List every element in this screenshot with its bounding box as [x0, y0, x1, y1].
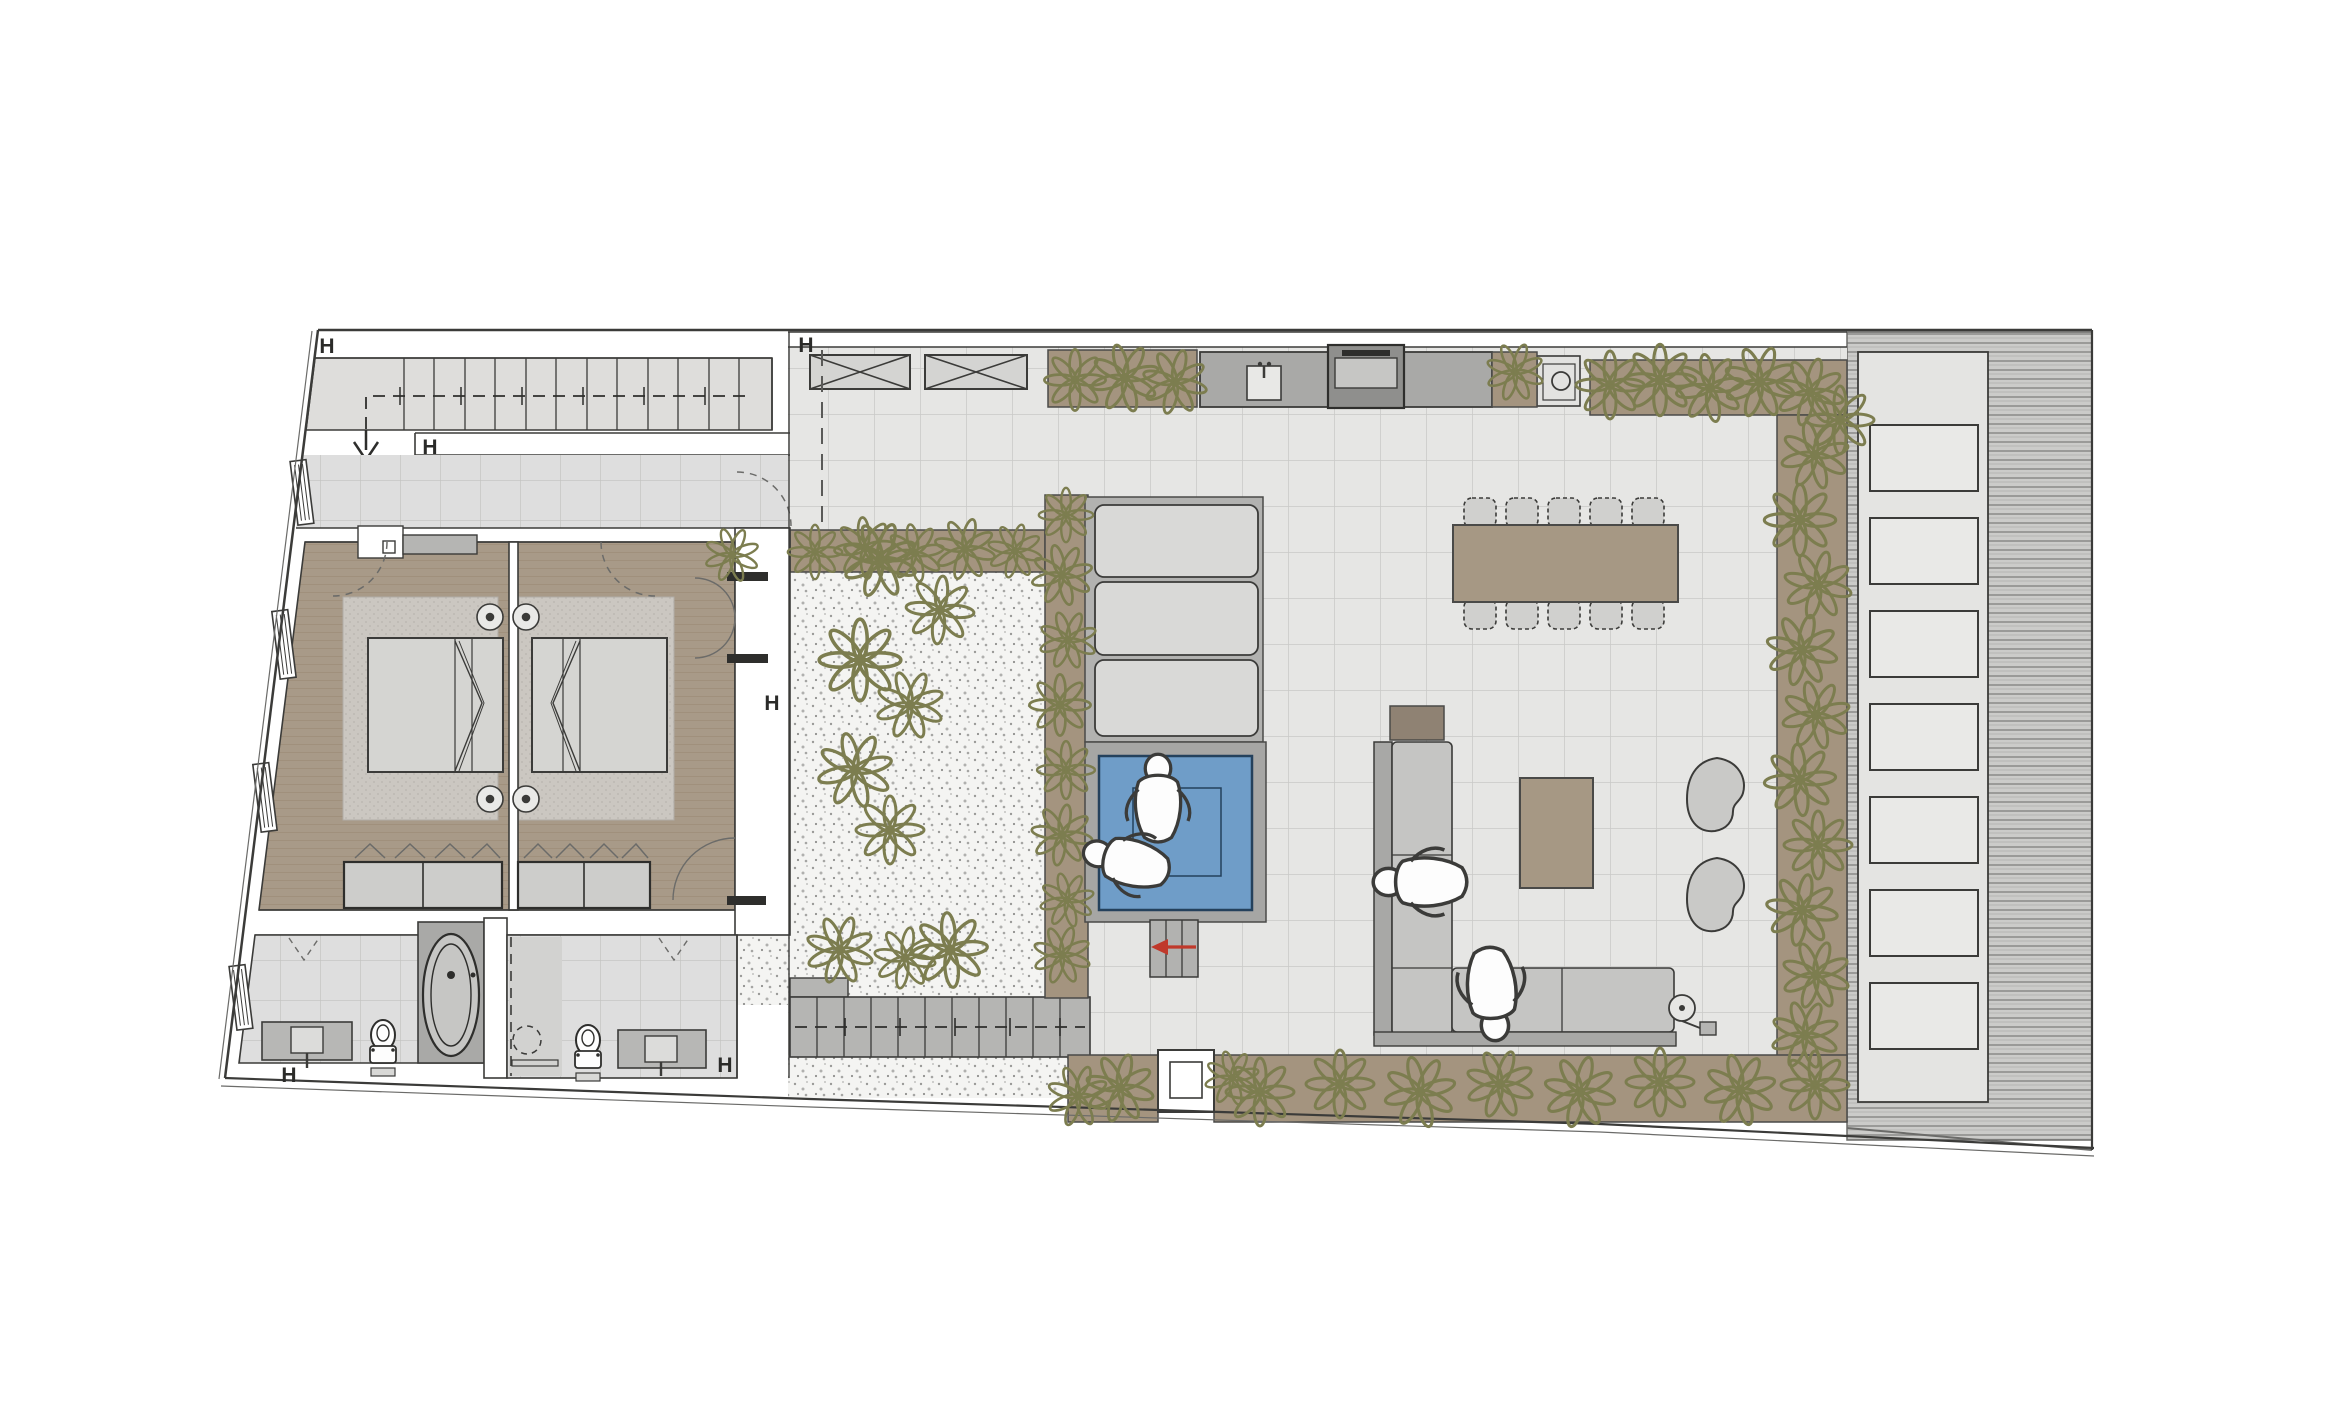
entry-gate — [1158, 1050, 1214, 1112]
hallway — [296, 455, 791, 528]
roof-skylight-panel — [1870, 518, 1978, 584]
wall-label: H — [281, 1064, 296, 1087]
bedroom-divider-wall — [509, 542, 518, 910]
dining-chair — [1548, 498, 1580, 528]
door-threshold — [727, 654, 768, 663]
side-table — [1390, 706, 1444, 740]
toilet — [575, 1025, 601, 1081]
dining-table — [1453, 525, 1678, 602]
kitchen-sink — [1247, 362, 1281, 400]
roof-skylight-panel — [1870, 611, 1978, 677]
bbq-grill — [1328, 345, 1404, 408]
roof-skylight-panel — [1870, 983, 1978, 1049]
double-bed — [532, 638, 667, 772]
dining-chair — [1590, 599, 1622, 629]
skylight-vent — [925, 355, 1027, 389]
bathtub — [423, 934, 479, 1056]
dining-set — [1453, 498, 1678, 629]
dining-chair — [1464, 599, 1496, 629]
roof-skylight-panel — [1870, 425, 1978, 491]
roof-skylight-panel — [1870, 797, 1978, 863]
floor-plan-page: H H H H H H — [0, 0, 2332, 1410]
dining-chair — [1632, 599, 1664, 629]
courtyard-gravel — [788, 530, 1045, 997]
wall-label: H — [717, 1054, 732, 1077]
roof-skylight-panel — [1870, 890, 1978, 956]
sofa-backrest — [1374, 1032, 1676, 1046]
dining-chair — [1632, 498, 1664, 528]
double-bed — [368, 638, 503, 772]
sun-lounger — [1095, 582, 1258, 655]
wall-label: H — [422, 436, 437, 459]
skylight-vent — [810, 355, 910, 389]
bathroom-divider-wall — [484, 918, 507, 1078]
wall-label: H — [798, 334, 813, 357]
dining-chair — [1464, 498, 1496, 528]
coffee-table — [1520, 778, 1593, 888]
bedrooms — [259, 526, 790, 935]
neighbor-roof-structure — [1847, 332, 2092, 1150]
hallway-floor — [296, 455, 788, 528]
wall-label: H — [764, 692, 779, 715]
light-switch — [383, 541, 395, 553]
sun-lounger — [1095, 505, 1258, 577]
dining-chair — [1590, 498, 1622, 528]
floor-plan-drawing: H H H H H H — [0, 0, 2332, 1410]
pool-area — [1085, 497, 1266, 977]
gravel-strip — [788, 1057, 1068, 1098]
wall-label: H — [319, 335, 334, 358]
door-threshold — [727, 896, 766, 905]
dining-chair — [1506, 599, 1538, 629]
wall-niche — [358, 526, 403, 558]
dining-chair — [1548, 599, 1580, 629]
toilet — [370, 1020, 396, 1076]
sun-lounger — [1095, 660, 1258, 736]
roof-skylight-panels — [1870, 425, 1978, 1049]
bathrooms — [239, 910, 737, 1081]
media-console — [403, 535, 477, 554]
dining-chair — [1506, 498, 1538, 528]
roof-skylight-panel — [1870, 704, 1978, 770]
shower-area — [509, 937, 562, 1076]
